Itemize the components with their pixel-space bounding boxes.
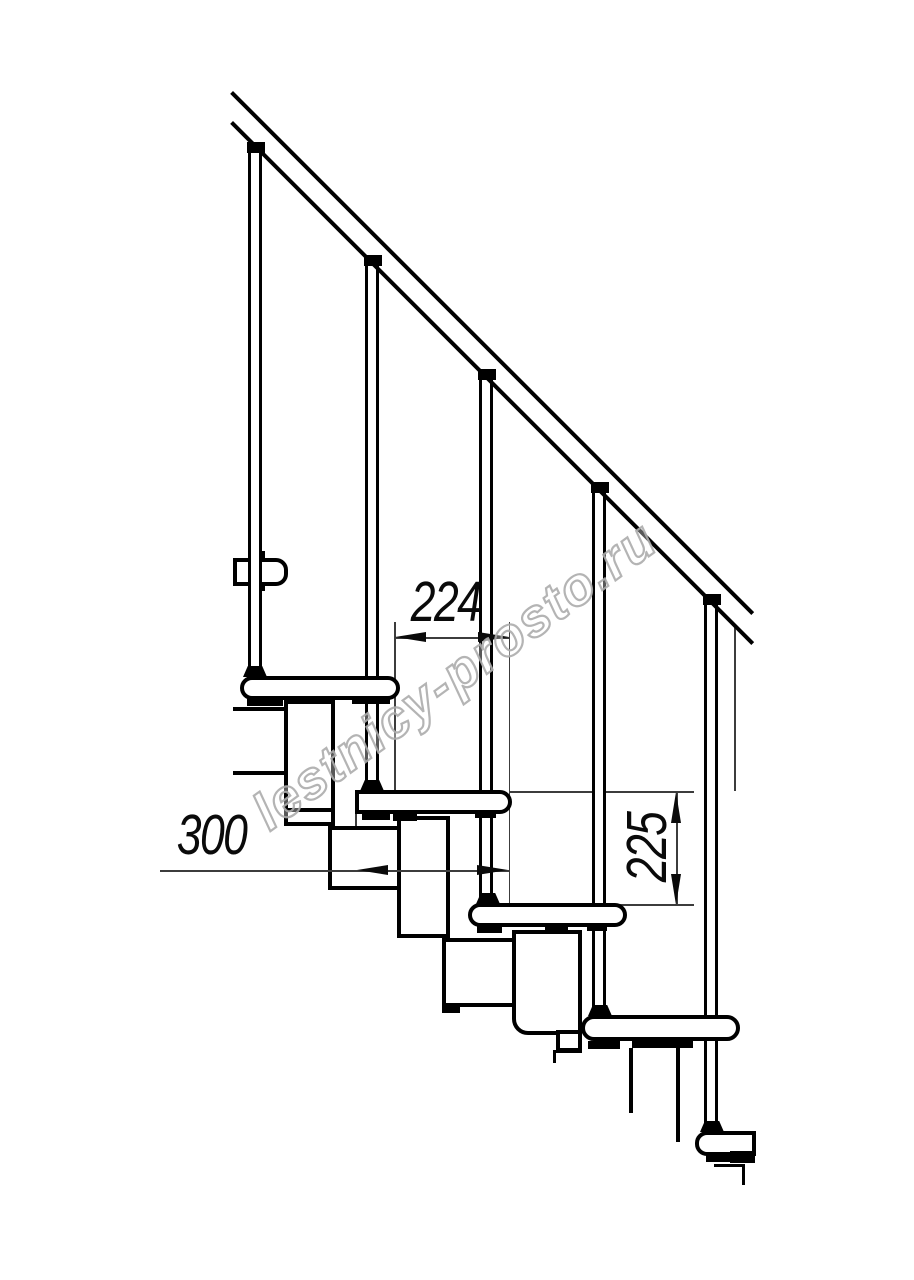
- tread: [355, 790, 512, 814]
- dimension-arrow: [357, 865, 388, 875]
- baluster: [704, 602, 718, 1133]
- stringer-module: [556, 1030, 582, 1052]
- mount-pad: [545, 925, 568, 932]
- stringer-cut-line: [676, 1045, 680, 1142]
- dimension-arrow: [477, 865, 508, 875]
- mount-pad: [588, 1041, 620, 1049]
- stringer-foot-tick: [553, 1050, 556, 1063]
- dimension-label-rise: 225: [597, 797, 697, 897]
- mount-pad: [247, 699, 283, 706]
- baluster-base: [360, 780, 384, 791]
- mount-pad: [475, 812, 496, 818]
- tread: [468, 903, 627, 927]
- tread: [581, 1015, 740, 1041]
- stringer-foot-line: [553, 1050, 582, 1053]
- bracket-cut-line: [742, 1164, 745, 1185]
- mount-pad: [632, 1041, 693, 1048]
- mount-pad: [587, 925, 607, 931]
- mount-pad: [730, 1151, 755, 1163]
- stringer-module: [397, 816, 450, 938]
- stringer-module: [328, 826, 405, 890]
- dimension-line-depth: [160, 870, 509, 872]
- mount-pad: [393, 813, 417, 821]
- mount-pad: [477, 925, 502, 933]
- dimension-value-rise: 225: [619, 812, 676, 882]
- stringer-module: [442, 938, 517, 1007]
- stringer-cut-line: [629, 1048, 633, 1113]
- bracket-cut-line: [714, 1164, 745, 1167]
- mount-pad: [362, 812, 390, 820]
- dimension-value-run: 224: [411, 574, 481, 631]
- extension-line: [734, 625, 736, 791]
- baluster-base: [243, 666, 267, 677]
- mount-pad: [442, 1007, 460, 1013]
- staircase-drawing: 224 300 225 lestnicy-prosto.ru: [0, 0, 914, 1280]
- stringer-module: [512, 930, 582, 1035]
- baluster: [248, 150, 262, 678]
